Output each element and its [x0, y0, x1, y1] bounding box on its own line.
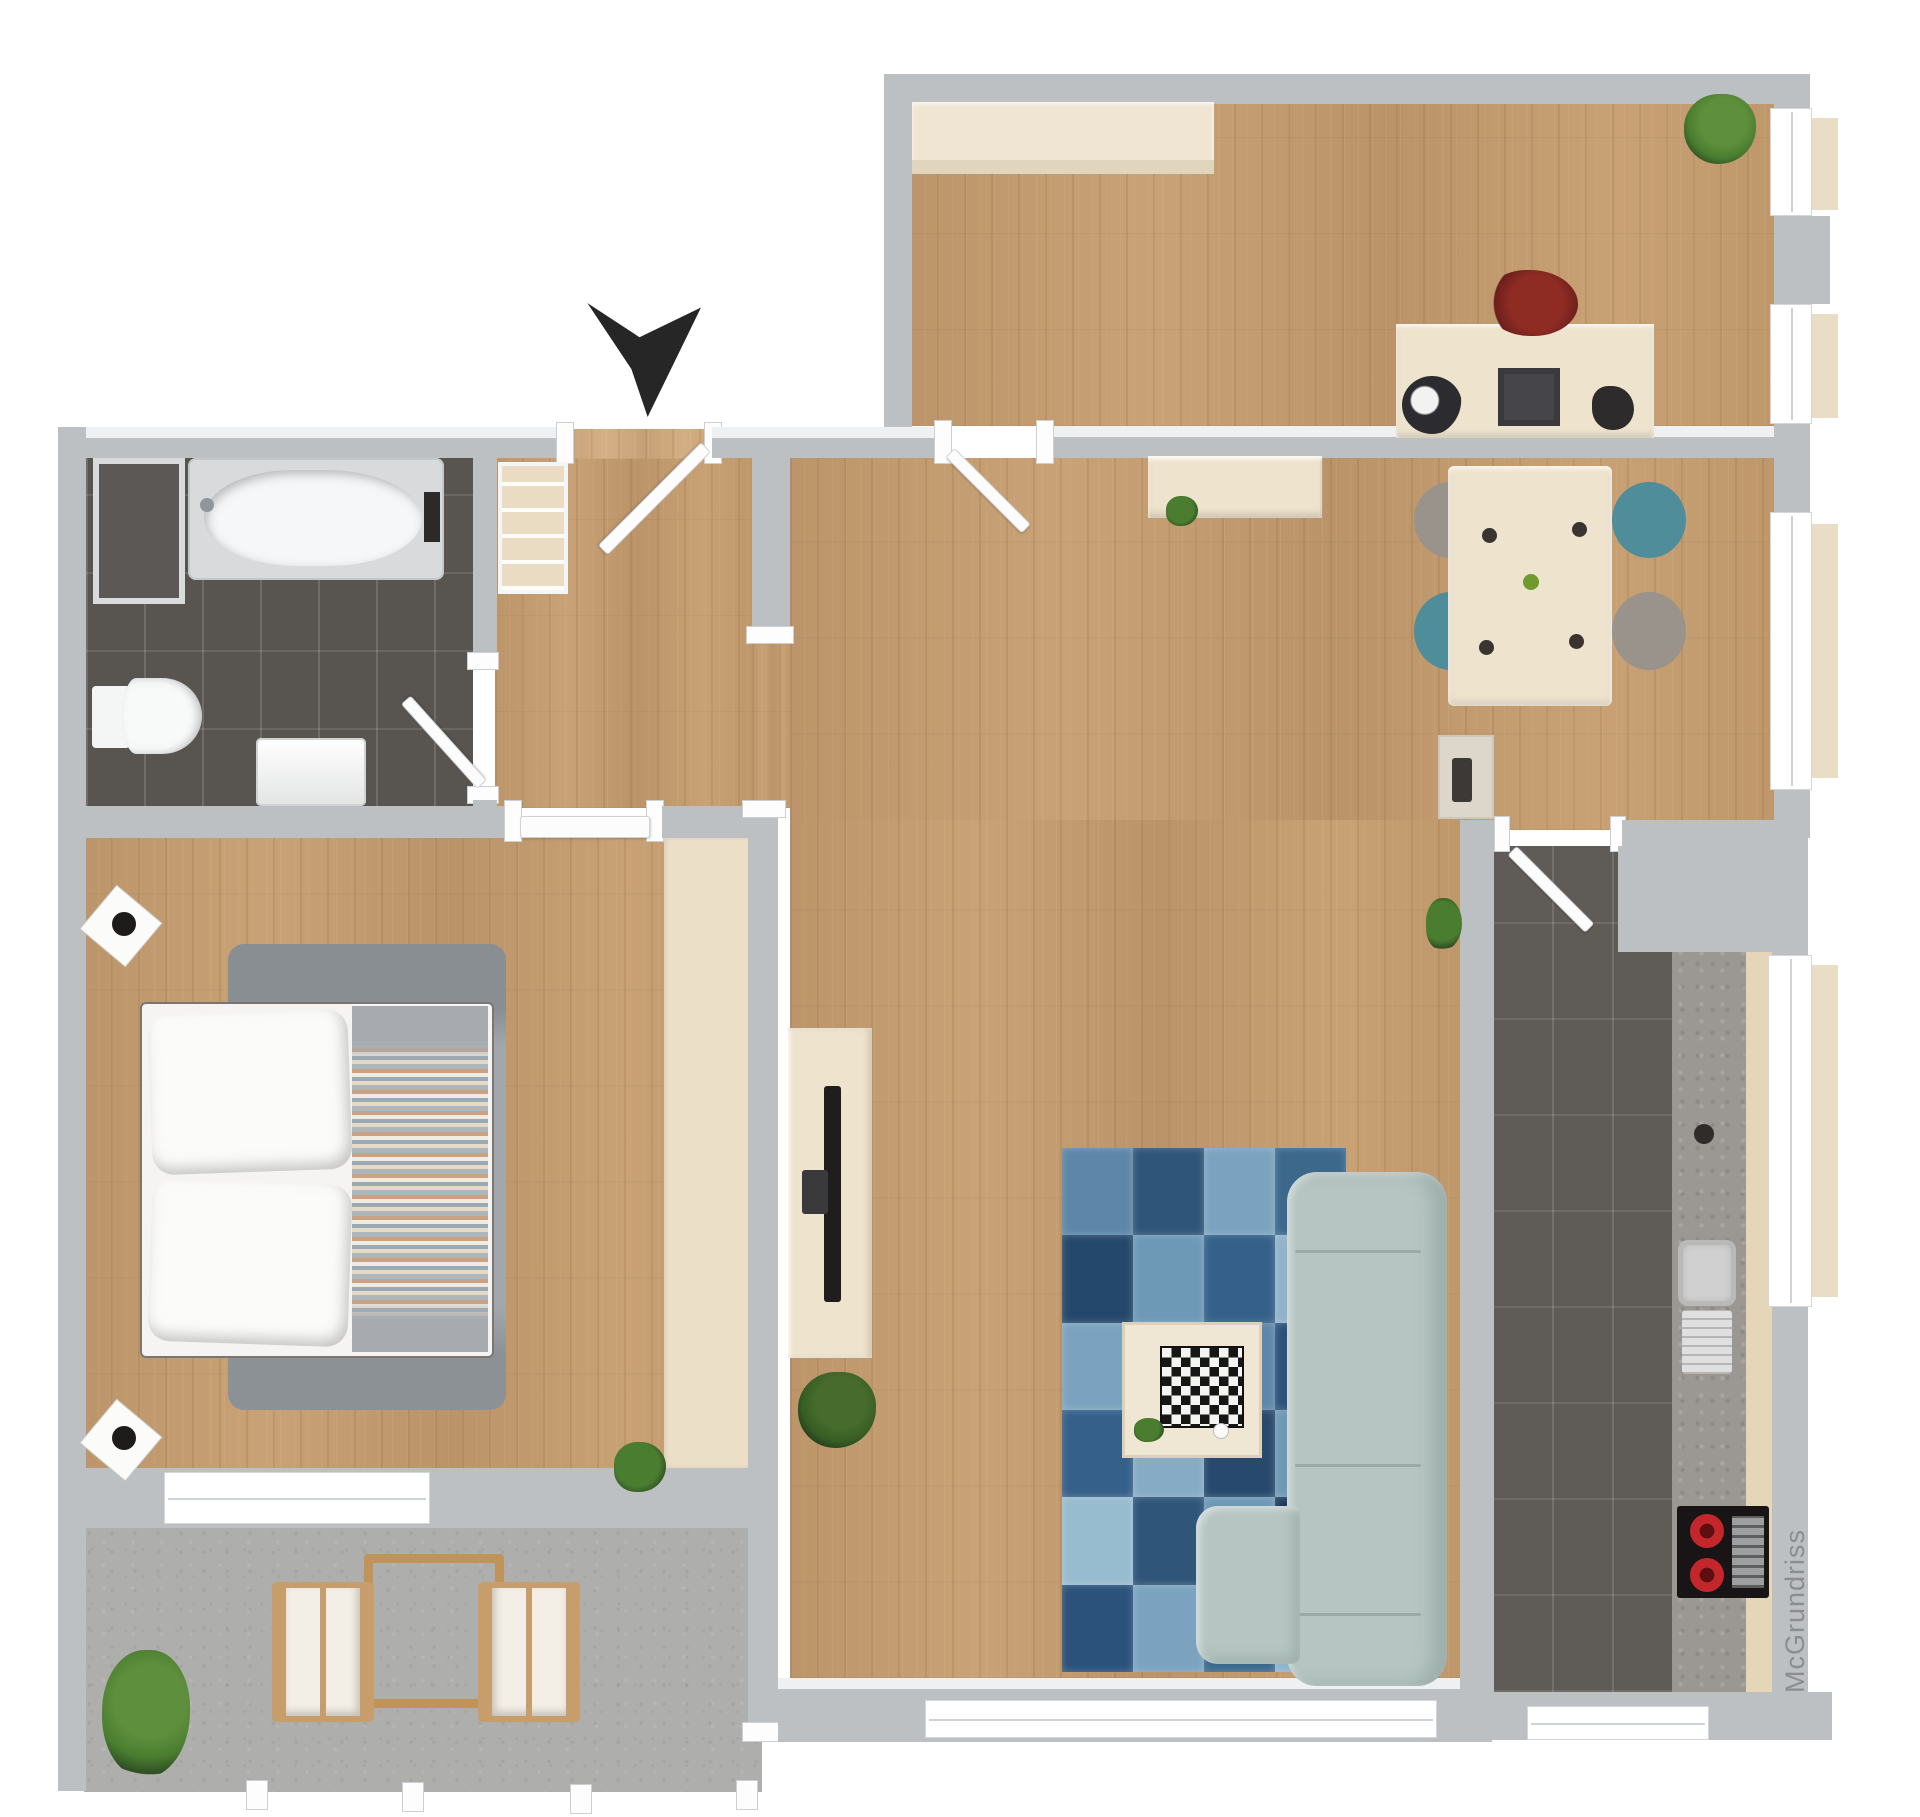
sofa-seam [1295, 1613, 1421, 1616]
office-closet [912, 102, 1214, 174]
balcony-chair-right [478, 1582, 580, 1722]
balcony-railing-post [736, 1780, 758, 1810]
coffee-table-plant [1134, 1418, 1164, 1442]
table-leg [1479, 640, 1494, 655]
bathroom-sink-unit [256, 738, 366, 806]
rug-patch [1133, 1497, 1204, 1584]
right-wall-seg-c [1774, 424, 1810, 512]
balcony-chair-left [272, 1582, 374, 1722]
rug-patch [1133, 1148, 1204, 1235]
sofa-seam [1295, 1464, 1421, 1467]
kitchen-floor [1492, 846, 1672, 1692]
desk-monitor [1498, 368, 1560, 426]
coffee-table [1122, 1322, 1262, 1458]
toilet-bowl [122, 678, 202, 754]
rug-patch [1204, 1148, 1275, 1235]
rug-patch [1062, 1585, 1133, 1672]
kitchen-north-wall-right [1622, 820, 1774, 848]
watermark-text: McGrundriss [1780, 1478, 1811, 1693]
desk-red-plant [1486, 270, 1578, 336]
dining-window-sill [1812, 524, 1838, 778]
rug-patch [1133, 1585, 1204, 1672]
bathroom-cabinet [93, 458, 185, 604]
right-wall-pillar [1774, 216, 1830, 304]
office-window-2-sill [1812, 314, 1838, 418]
floor-plan: McGrundriss [0, 0, 1920, 1817]
office-top-wall [884, 74, 1810, 104]
wall-shelf-item [1452, 758, 1472, 802]
kitchen-stove [1677, 1506, 1769, 1598]
balcony-railing-post [246, 1780, 268, 1810]
kitchen-dish-rack [1682, 1310, 1732, 1374]
hallway-bench [498, 462, 568, 594]
bedroom-living-wall [748, 804, 778, 1742]
top-wall-left [58, 427, 564, 458]
office-window-1-sill [1812, 118, 1838, 210]
chair-seam [320, 1588, 326, 1716]
kitchen-corner-wall-mass [1618, 846, 1774, 952]
kitchen-window [1768, 955, 1812, 1307]
table-leg [1482, 528, 1497, 543]
right-wall-seg-a [1774, 74, 1810, 112]
bedroom-north-wall-left [58, 806, 508, 838]
bedroom-balcony-window [164, 1472, 430, 1524]
coffee-table-chessboard [1160, 1346, 1244, 1428]
nightstand-lamp [112, 912, 136, 936]
rug-patch [1062, 1497, 1133, 1584]
sofa-chaise [1196, 1506, 1300, 1664]
office-left-wall [884, 74, 912, 428]
sofa-seam [1295, 1250, 1421, 1253]
table-leg [1572, 522, 1587, 537]
kitchen-sink [1678, 1240, 1736, 1306]
office-chair [1402, 376, 1462, 434]
kitchen-window-sill [1812, 965, 1838, 1297]
rug-patch [1204, 1235, 1275, 1322]
office-window-2 [1770, 304, 1812, 424]
blanket-fold-top [352, 1006, 488, 1062]
rug-patch [1062, 1148, 1133, 1235]
bedroom-wardrobe [664, 838, 748, 1468]
coffee-table-cup [1214, 1424, 1228, 1438]
bed [140, 1002, 494, 1358]
stove-oven-grill [1732, 1516, 1764, 1588]
dining-chair-bottom-right [1612, 592, 1686, 670]
bed-pillow [147, 1009, 352, 1176]
bath-door-jamb-top [467, 652, 499, 670]
balcony-railing-post [402, 1782, 424, 1812]
sofa-body [1287, 1172, 1447, 1686]
bed-pillow [147, 1179, 353, 1348]
right-wall-seg-d [1774, 790, 1810, 838]
kitchen-south-window [1527, 1706, 1709, 1740]
balcony-railing-post [570, 1784, 592, 1814]
blanket-fold-bottom [352, 1300, 488, 1352]
stove-burner [1690, 1514, 1724, 1548]
rug-patch [1062, 1235, 1133, 1322]
hall-living-stub-cap [746, 626, 794, 644]
left-outer-wall [58, 427, 86, 1791]
office-window-1 [1770, 108, 1812, 216]
dining-chair-top-right [1612, 482, 1686, 558]
stove-burner [1690, 1558, 1724, 1592]
bed-blanket [352, 1006, 488, 1352]
table-leg [1569, 634, 1584, 649]
bathtub-faucet [200, 498, 214, 512]
dining-table [1448, 466, 1612, 706]
top-wall-right [712, 427, 934, 458]
bedroom-door-leaf [520, 816, 650, 838]
bedroom-living-wall-cap-top [742, 800, 786, 818]
table-center-plant [1523, 574, 1539, 590]
entrance-jamb-left [556, 422, 574, 464]
nightstand-lamp [112, 1426, 136, 1450]
desk-side-item [1592, 386, 1634, 430]
bathtub-basin [204, 470, 422, 566]
kitchen-door-jamb-left [1494, 816, 1510, 852]
entrance-arrow-icon [585, 303, 701, 417]
kitchen-faucet [1694, 1124, 1714, 1144]
passage-floor [752, 628, 790, 808]
bathtub [188, 458, 444, 580]
dining-window [1770, 512, 1812, 790]
office-door-jamb-right [1036, 420, 1054, 464]
living-south-window [925, 1700, 1437, 1738]
chair-seam [526, 1588, 532, 1716]
hall-living-stub-wall [752, 458, 790, 630]
living-kitchen-wall [1460, 830, 1494, 1692]
tv-mount-box [802, 1170, 828, 1214]
bathtub-tray [424, 492, 440, 542]
rug-patch [1133, 1235, 1204, 1322]
bath-hall-wall [473, 458, 497, 658]
